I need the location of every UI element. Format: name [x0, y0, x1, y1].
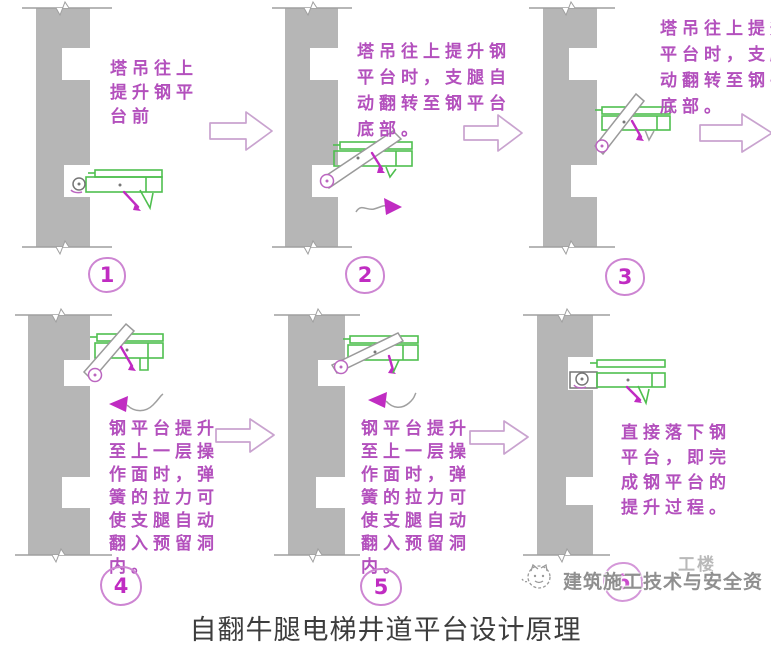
panel-1-wall [22, 2, 112, 254]
cat-logo-icon [520, 559, 554, 593]
step-badge-2: 2 [345, 256, 385, 294]
panel-4-annotation: 钢平台提升 至上一层操 作面时，弹 簧的拉力可 使支腿自动 翻入预留洞 内。 [109, 418, 219, 579]
panel-4-platform [84, 324, 163, 382]
watermark-text: 建筑施工技术与安全资 [563, 567, 763, 594]
panel-5-annotation: 钢平台提升 至上一层操 作面时，弹 簧的拉力可 使支腿自动 翻入预留洞 内。 [361, 418, 471, 579]
panel-6-annotation: 直接落下钢 平台，即完 成钢平台的 提升过程。 [621, 421, 731, 521]
step-badge-5: 5 [360, 568, 402, 606]
panel-2-rotate-arrow-icon [356, 198, 402, 215]
watermark: 工楼 建筑施工技术与安全资 [520, 545, 771, 605]
step-arrow-1-icon [210, 112, 272, 150]
panel-1-annotation: 塔吊往上 提升钢平 台前 [110, 57, 198, 129]
step-arrow-4-icon [216, 419, 274, 452]
panel-2-wall [272, 2, 352, 254]
panel-4-wall [15, 309, 112, 562]
step-arrow-5-icon [470, 421, 528, 454]
step-badge-3: 3 [605, 258, 645, 296]
diagram-page: 塔吊往上 提升钢平 台前 塔吊往上提升钢 平台时，支腿自 动翻转至钢平台 底部。… [0, 0, 771, 647]
panel-4-rotate-arrow-icon [109, 394, 163, 412]
step-badge-1: 1 [88, 257, 126, 293]
panel-6-wall [523, 309, 610, 562]
panel-5-rotate-arrow-icon [368, 392, 416, 408]
panel-3-platform [595, 94, 670, 154]
step-badge-4: 4 [100, 566, 142, 606]
panel-3-annotation: 塔吊往上提升钢 平台时，支腿自 动翻转至钢平台 底部。 [660, 16, 771, 120]
panel-2-annotation: 塔吊往上提升钢 平台时，支腿自 动翻转至钢平台 底部。 [357, 39, 511, 143]
panel-5-wall [274, 309, 360, 562]
caption: 自翻牛腿电梯井道平台设计原理 [0, 608, 771, 647]
